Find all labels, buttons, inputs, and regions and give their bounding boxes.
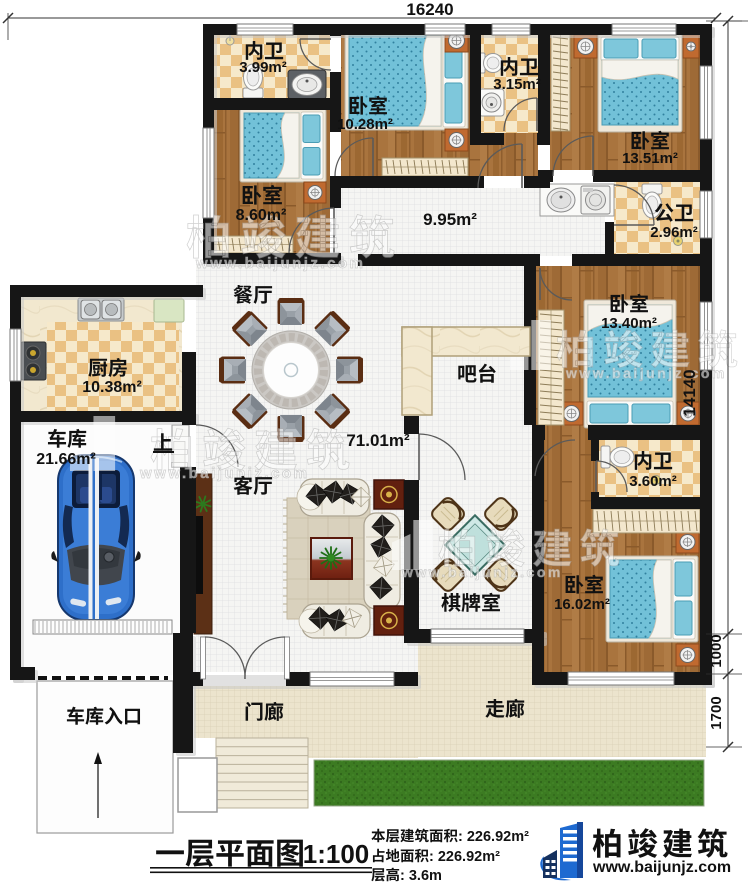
svg-text:: 226.92m²: : 226.92m² xyxy=(429,849,500,865)
svg-text:1:100: 1:100 xyxy=(303,839,370,869)
svg-text:3.60m²: 3.60m² xyxy=(629,473,677,490)
svg-text:10.38m²: 10.38m² xyxy=(82,379,142,396)
svg-text:3.15m²: 3.15m² xyxy=(493,76,541,93)
svg-text:13.51m²: 13.51m² xyxy=(622,150,678,167)
svg-text:71.01m²: 71.01m² xyxy=(346,431,410,450)
svg-text:13.40m²: 13.40m² xyxy=(601,315,657,332)
svg-text:www.baijunjz.com: www.baijunjz.com xyxy=(401,564,563,580)
svg-text:www.baijunjz.com: www.baijunjz.com xyxy=(195,255,365,272)
svg-text:: 226.92m²: : 226.92m² xyxy=(458,829,529,845)
svg-text:2.96m²: 2.96m² xyxy=(650,224,698,241)
svg-text:www.baijunjz.com: www.baijunjz.com xyxy=(592,859,731,876)
svg-text:9.95m²: 9.95m² xyxy=(423,210,477,229)
svg-text:8.60m²: 8.60m² xyxy=(236,207,287,224)
svg-text:16240: 16240 xyxy=(406,0,453,19)
svg-text:www.baijunjz.com: www.baijunjz.com xyxy=(139,465,309,482)
svg-text:14140: 14140 xyxy=(680,369,699,416)
svg-text:1000: 1000 xyxy=(708,634,725,667)
svg-text:3.99m²: 3.99m² xyxy=(239,59,287,76)
svg-text:: 3.6m: : 3.6m xyxy=(400,868,442,884)
svg-text:10.28m²: 10.28m² xyxy=(337,116,393,133)
svg-text:www.baijunjz.com: www.baijunjz.com xyxy=(565,365,727,381)
svg-text:21.66m²: 21.66m² xyxy=(36,451,96,468)
svg-text:1700: 1700 xyxy=(708,696,725,729)
svg-text:16.02m²: 16.02m² xyxy=(554,596,610,613)
